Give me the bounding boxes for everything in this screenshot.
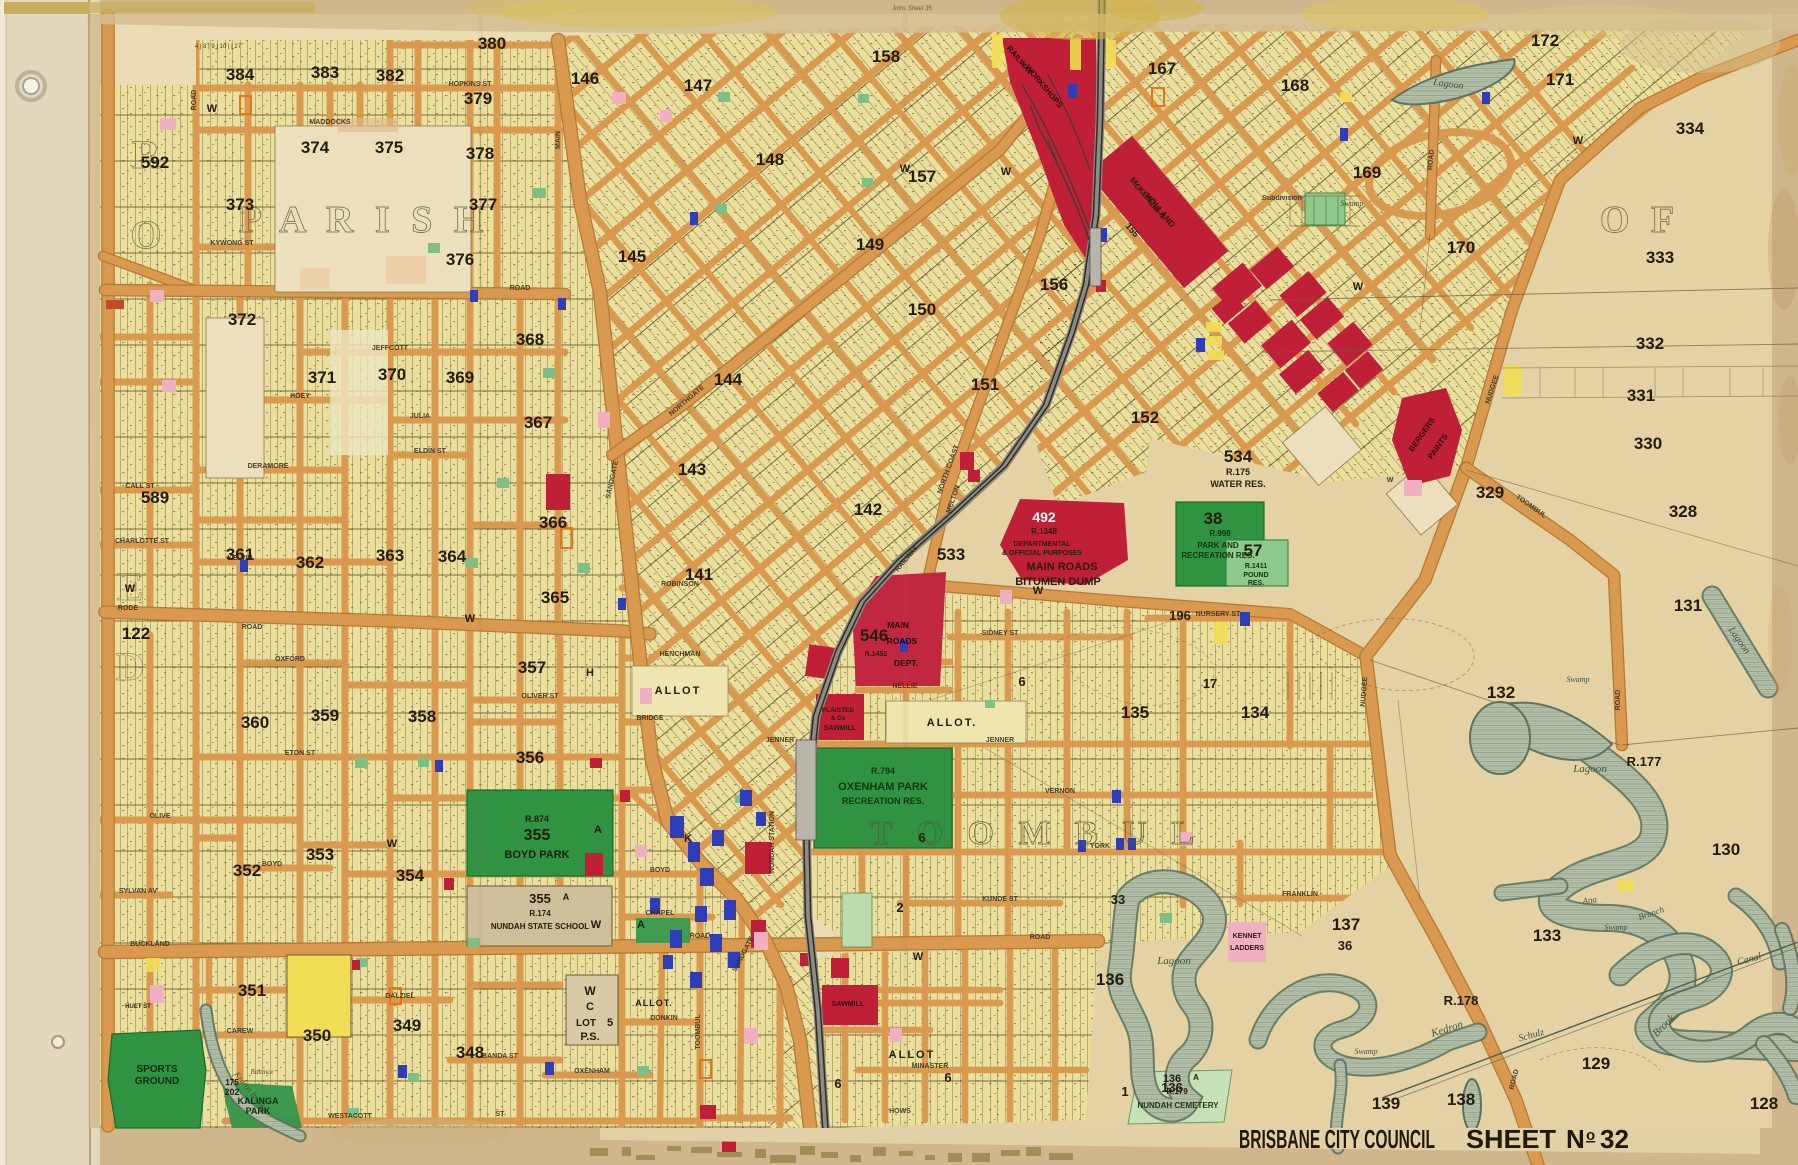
svg-text:Joins Sheet 35: Joins Sheet 35 bbox=[891, 6, 932, 12]
svg-text:ALLOT.: ALLOT. bbox=[927, 717, 978, 729]
svg-text:Swamp: Swamp bbox=[1566, 675, 1589, 684]
svg-text:131: 131 bbox=[1674, 596, 1702, 615]
svg-text:355: 355 bbox=[529, 891, 551, 906]
svg-text:171: 171 bbox=[1546, 70, 1574, 89]
svg-text:129: 129 bbox=[1582, 1054, 1610, 1073]
svg-text:145: 145 bbox=[618, 247, 646, 266]
svg-text:384: 384 bbox=[226, 65, 255, 84]
svg-text:H: H bbox=[586, 667, 594, 679]
svg-text:328: 328 bbox=[1669, 502, 1697, 521]
svg-text:MINASTER: MINASTER bbox=[912, 1063, 949, 1070]
svg-text:ALLOT.: ALLOT. bbox=[635, 998, 673, 1008]
svg-text:351: 351 bbox=[238, 981, 266, 1000]
svg-text:Swamp: Swamp bbox=[1604, 923, 1627, 932]
svg-text:152: 152 bbox=[1131, 408, 1159, 427]
svg-text:6: 6 bbox=[944, 1070, 951, 1085]
svg-text:137: 137 bbox=[1332, 915, 1360, 934]
svg-text:R.177: R.177 bbox=[1627, 754, 1662, 769]
svg-text:128: 128 bbox=[1750, 1094, 1778, 1113]
svg-text:W: W bbox=[591, 919, 602, 931]
svg-text:150: 150 bbox=[908, 300, 936, 319]
svg-text:MADDOCKS: MADDOCKS bbox=[309, 119, 351, 126]
svg-text:382: 382 bbox=[376, 66, 404, 85]
svg-text:378: 378 bbox=[466, 144, 494, 163]
svg-text:HOWS: HOWS bbox=[889, 1108, 911, 1115]
svg-text:ELDIN ST: ELDIN ST bbox=[414, 448, 447, 455]
svg-text:R.1452: R.1452 bbox=[865, 651, 888, 658]
svg-text:33: 33 bbox=[1111, 892, 1125, 907]
svg-text:RODE: RODE bbox=[118, 605, 139, 612]
svg-text:374: 374 bbox=[301, 138, 330, 157]
svg-text:168: 168 bbox=[1281, 76, 1309, 95]
svg-text:38: 38 bbox=[1204, 509, 1223, 528]
svg-text:HENCHMAN: HENCHMAN bbox=[660, 651, 701, 658]
svg-text:NUNDAH CEMETERY: NUNDAH CEMETERY bbox=[1137, 1101, 1219, 1110]
svg-text:17: 17 bbox=[1203, 676, 1217, 691]
svg-text:W: W bbox=[465, 613, 476, 625]
svg-text:ROAD: ROAD bbox=[191, 90, 198, 111]
svg-text:136: 136 bbox=[1163, 1073, 1181, 1085]
svg-text:R.794: R.794 bbox=[871, 766, 895, 776]
svg-text:Swamp: Swamp bbox=[1340, 199, 1363, 208]
svg-text:SAWMILL: SAWMILL bbox=[824, 725, 857, 732]
svg-text:546: 546 bbox=[860, 626, 888, 645]
svg-text:6: 6 bbox=[1018, 674, 1025, 689]
svg-text:5: 5 bbox=[607, 1017, 613, 1029]
svg-text:W: W bbox=[387, 838, 398, 850]
svg-text:136: 136 bbox=[1096, 970, 1124, 989]
svg-text:HUET ST: HUET ST bbox=[125, 1004, 151, 1010]
svg-text:W: W bbox=[584, 984, 596, 998]
svg-text:RES.: RES. bbox=[1248, 580, 1264, 587]
svg-text:363: 363 bbox=[376, 546, 404, 565]
svg-text:592: 592 bbox=[141, 153, 169, 172]
svg-text:135: 135 bbox=[1121, 703, 1149, 722]
svg-text:329: 329 bbox=[1476, 483, 1504, 502]
svg-text:1: 1 bbox=[1121, 1084, 1128, 1099]
svg-text:359: 359 bbox=[311, 706, 339, 725]
svg-text:R.1348: R.1348 bbox=[1031, 527, 1057, 536]
svg-text:OXENHAM: OXENHAM bbox=[574, 1068, 610, 1075]
svg-text:534: 534 bbox=[1224, 447, 1253, 466]
svg-text:ROAD: ROAD bbox=[690, 933, 711, 940]
svg-text:KUNDE ST: KUNDE ST bbox=[982, 896, 1019, 903]
svg-text:SIDNEY ST: SIDNEY ST bbox=[982, 630, 1020, 637]
svg-text:196: 196 bbox=[1169, 608, 1191, 623]
svg-text:372: 372 bbox=[228, 310, 256, 329]
svg-text:JENNER: JENNER bbox=[766, 737, 794, 744]
svg-text:BRISBANE CITY COUNCIL: BRISBANE CITY COUNCIL bbox=[1239, 1124, 1435, 1154]
svg-text:349: 349 bbox=[393, 1016, 421, 1035]
svg-text:KENNET: KENNET bbox=[1233, 933, 1263, 940]
svg-text:32: 32 bbox=[1600, 1124, 1629, 1154]
svg-text:202: 202 bbox=[224, 1087, 239, 1097]
svg-text:& Co: & Co bbox=[831, 716, 845, 722]
svg-text:367: 367 bbox=[524, 413, 552, 432]
svg-text:GROUND: GROUND bbox=[135, 1076, 179, 1087]
svg-text:DONKIN: DONKIN bbox=[650, 1015, 678, 1022]
svg-text:W: W bbox=[1387, 477, 1394, 484]
svg-text:360: 360 bbox=[241, 713, 269, 732]
svg-text:CHARLOTTE ST: CHARLOTTE ST bbox=[115, 538, 170, 545]
svg-text:143: 143 bbox=[678, 460, 706, 479]
svg-text:365: 365 bbox=[541, 588, 569, 607]
svg-text:352: 352 bbox=[233, 861, 261, 880]
svg-text:139: 139 bbox=[1372, 1094, 1400, 1113]
svg-text:4 | 8 | 9 | 10 | | 27: 4 | 8 | 9 | 10 | | 27 bbox=[195, 44, 242, 50]
svg-text:138: 138 bbox=[1447, 1090, 1475, 1109]
svg-text:P.S.: P.S. bbox=[580, 1031, 599, 1043]
svg-text:K: K bbox=[684, 833, 692, 845]
svg-text:362: 362 bbox=[296, 553, 324, 572]
svg-text:OLIVE: OLIVE bbox=[149, 813, 170, 820]
svg-text:FRANKLIN: FRANKLIN bbox=[1282, 891, 1318, 898]
svg-text:Lagoon: Lagoon bbox=[1572, 763, 1607, 775]
svg-text:ALLOT: ALLOT bbox=[655, 685, 702, 697]
svg-text:WESTACOTT: WESTACOTT bbox=[328, 1113, 373, 1120]
svg-text:DALZIEL: DALZIEL bbox=[385, 993, 415, 1000]
svg-text:R.178: R.178 bbox=[1444, 993, 1479, 1008]
svg-text:ROADS: ROADS bbox=[887, 636, 918, 646]
svg-text:W: W bbox=[1573, 135, 1584, 147]
svg-text:VERNON: VERNON bbox=[1045, 788, 1075, 795]
svg-text:W: W bbox=[1033, 585, 1044, 597]
svg-text:169: 169 bbox=[1353, 163, 1381, 182]
svg-text:LOT: LOT bbox=[576, 1018, 596, 1029]
svg-text:142: 142 bbox=[854, 500, 882, 519]
svg-text:Subdivision: Subdivision bbox=[1262, 195, 1302, 202]
svg-text:370: 370 bbox=[378, 365, 406, 384]
svg-text:BOYD: BOYD bbox=[262, 861, 282, 868]
svg-text:OXFORD: OXFORD bbox=[275, 656, 305, 663]
svg-text:379: 379 bbox=[464, 89, 492, 108]
svg-text:R.998: R.998 bbox=[1209, 529, 1231, 538]
svg-text:BITUMEN DUMP: BITUMEN DUMP bbox=[1015, 576, 1101, 588]
svg-text:O: O bbox=[130, 212, 161, 257]
svg-text:OLIVER ST: OLIVER ST bbox=[522, 693, 560, 700]
svg-text:364: 364 bbox=[438, 547, 467, 566]
svg-text:CAREW: CAREW bbox=[227, 1028, 254, 1035]
svg-text:330: 330 bbox=[1634, 434, 1662, 453]
svg-text:368: 368 bbox=[516, 330, 544, 349]
svg-text:A: A bbox=[563, 892, 570, 902]
svg-text:133: 133 bbox=[1533, 926, 1561, 945]
svg-text:589: 589 bbox=[141, 488, 169, 507]
svg-text:355: 355 bbox=[524, 827, 551, 844]
svg-text:P A R I S H: P A R I S H bbox=[239, 199, 490, 241]
svg-text:W: W bbox=[125, 583, 136, 595]
svg-text:NELLIE: NELLIE bbox=[893, 683, 918, 690]
svg-text:DERAMORE: DERAMORE bbox=[248, 463, 289, 470]
svg-text:376: 376 bbox=[446, 250, 474, 269]
svg-text:158: 158 bbox=[872, 47, 900, 66]
svg-text:SPORTS: SPORTS bbox=[136, 1064, 177, 1075]
svg-text:JULIA: JULIA bbox=[410, 413, 430, 420]
svg-text:148: 148 bbox=[756, 150, 784, 169]
svg-text:R.1411: R.1411 bbox=[1245, 563, 1267, 570]
svg-text:KELVIN: KELVIN bbox=[227, 555, 252, 562]
svg-text:MAIN: MAIN bbox=[555, 131, 562, 149]
svg-text:134: 134 bbox=[1241, 703, 1270, 722]
svg-text:350: 350 bbox=[303, 1026, 331, 1045]
svg-text:C: C bbox=[586, 1001, 594, 1013]
svg-text:ROBINSON: ROBINSON bbox=[661, 581, 699, 588]
svg-text:348: 348 bbox=[456, 1043, 484, 1062]
svg-text:156: 156 bbox=[1040, 275, 1068, 294]
svg-text:371: 371 bbox=[308, 368, 336, 387]
svg-text:Swamp: Swamp bbox=[1354, 1047, 1377, 1056]
svg-text:W: W bbox=[913, 951, 924, 963]
svg-text:122: 122 bbox=[122, 624, 150, 643]
svg-text:RECREATION RES.: RECREATION RES. bbox=[842, 796, 924, 806]
svg-text:377: 377 bbox=[469, 195, 497, 214]
svg-text:358: 358 bbox=[408, 707, 436, 726]
svg-text:ST: ST bbox=[496, 1111, 506, 1118]
svg-text:BOYD PARK: BOYD PARK bbox=[504, 849, 569, 861]
svg-text:O F: O F bbox=[1600, 199, 1680, 241]
svg-text:172: 172 bbox=[1531, 31, 1559, 50]
svg-text:ROAD: ROAD bbox=[510, 285, 531, 292]
svg-text:R.179: R.179 bbox=[1166, 1087, 1188, 1096]
svg-text:CALL ST: CALL ST bbox=[125, 483, 155, 490]
svg-text:JEFFCOTT: JEFFCOTT bbox=[372, 345, 409, 352]
svg-text:& OFFICIAL PURPOSES: & OFFICIAL PURPOSES bbox=[1002, 550, 1082, 557]
svg-text:BANDA ST: BANDA ST bbox=[482, 1053, 519, 1060]
svg-text:149: 149 bbox=[856, 235, 884, 254]
svg-text:Lagoon: Lagoon bbox=[1156, 955, 1191, 967]
svg-text:W: W bbox=[207, 103, 218, 115]
svg-text:354: 354 bbox=[396, 866, 425, 885]
svg-text:YORK: YORK bbox=[1090, 843, 1110, 850]
svg-text:130: 130 bbox=[1712, 840, 1740, 859]
svg-text:RECREATION RES.: RECREATION RES. bbox=[1181, 551, 1254, 560]
svg-text:375: 375 bbox=[375, 138, 403, 157]
svg-text:357: 357 bbox=[518, 658, 546, 677]
svg-text:SHEET: SHEET bbox=[1466, 1124, 1556, 1154]
svg-text:TOOMBUL: TOOMBUL bbox=[695, 1014, 702, 1050]
svg-text:A: A bbox=[637, 919, 645, 931]
svg-text:PLAISTED: PLAISTED bbox=[822, 707, 854, 714]
svg-text:N: N bbox=[1566, 1124, 1585, 1154]
svg-text:D: D bbox=[116, 644, 145, 689]
svg-text:POUND: POUND bbox=[1243, 572, 1268, 579]
svg-text:WATER RES.: WATER RES. bbox=[1210, 479, 1265, 489]
svg-text:383: 383 bbox=[311, 63, 339, 82]
svg-text:o: o bbox=[1586, 1127, 1595, 1144]
svg-text:HOPKINS ST: HOPKINS ST bbox=[449, 81, 493, 88]
svg-text:6: 6 bbox=[918, 830, 925, 845]
svg-text:533: 533 bbox=[937, 545, 965, 564]
svg-text:BRIDGE: BRIDGE bbox=[636, 715, 664, 722]
svg-text:W: W bbox=[1001, 166, 1012, 178]
svg-text:SAWMILL: SAWMILL bbox=[832, 1001, 865, 1008]
svg-text:147: 147 bbox=[684, 76, 712, 95]
svg-text:36: 36 bbox=[1338, 938, 1352, 953]
svg-text:DEPT.: DEPT. bbox=[894, 658, 918, 668]
svg-text:KYWONG ST: KYWONG ST bbox=[210, 240, 254, 247]
svg-text:BOYD: BOYD bbox=[650, 867, 670, 874]
svg-text:ETON ST: ETON ST bbox=[285, 750, 316, 757]
svg-text:132: 132 bbox=[1487, 683, 1515, 702]
svg-text:DEPARTMENTAL: DEPARTMENTAL bbox=[1014, 541, 1072, 548]
svg-text:ROAD: ROAD bbox=[1615, 690, 1622, 711]
svg-text:NURSERY ST: NURSERY ST bbox=[1196, 611, 1241, 618]
svg-text:W: W bbox=[900, 163, 911, 175]
svg-text:333: 333 bbox=[1646, 248, 1674, 267]
svg-text:356: 356 bbox=[516, 748, 544, 767]
svg-text:A: A bbox=[1193, 1073, 1199, 1082]
svg-text:151: 151 bbox=[971, 375, 999, 394]
svg-text:369: 369 bbox=[446, 368, 474, 387]
svg-text:492: 492 bbox=[1032, 509, 1056, 525]
svg-text:NUNDAH STATION: NUNDAH STATION bbox=[769, 811, 776, 873]
svg-text:ROAD: ROAD bbox=[1030, 934, 1051, 941]
svg-text:146: 146 bbox=[571, 69, 599, 88]
svg-text:MAIN ROADS: MAIN ROADS bbox=[1027, 561, 1098, 573]
svg-text:A: A bbox=[594, 824, 602, 836]
svg-text:157: 157 bbox=[908, 167, 936, 186]
svg-text:334: 334 bbox=[1676, 119, 1705, 138]
svg-text:SYLVAN AV: SYLVAN AV bbox=[119, 888, 158, 895]
svg-text:W: W bbox=[1353, 281, 1364, 293]
svg-text:332: 332 bbox=[1636, 334, 1664, 353]
svg-text:R.175: R.175 bbox=[1226, 467, 1250, 477]
svg-text:353: 353 bbox=[306, 845, 334, 864]
svg-text:R.874: R.874 bbox=[525, 814, 549, 824]
svg-text:366: 366 bbox=[539, 513, 567, 532]
svg-text:LADDERS: LADDERS bbox=[1230, 945, 1264, 952]
svg-text:MAIN: MAIN bbox=[887, 620, 909, 630]
svg-text:373: 373 bbox=[226, 195, 254, 214]
svg-text:170: 170 bbox=[1447, 238, 1475, 257]
svg-text:2: 2 bbox=[896, 900, 903, 915]
svg-text:Balance: Balance bbox=[251, 1068, 274, 1076]
svg-text:PARK AND: PARK AND bbox=[1197, 541, 1239, 550]
svg-text:167: 167 bbox=[1148, 59, 1176, 78]
svg-text:JENNER: JENNER bbox=[986, 737, 1014, 744]
svg-text:144: 144 bbox=[714, 370, 743, 389]
svg-text:331: 331 bbox=[1627, 386, 1655, 405]
svg-text:OXENHAM PARK: OXENHAM PARK bbox=[838, 781, 928, 793]
svg-text:380: 380 bbox=[478, 34, 506, 53]
svg-text:ALLOT: ALLOT bbox=[889, 1049, 936, 1061]
svg-text:6: 6 bbox=[834, 1076, 841, 1091]
svg-text:HOEY: HOEY bbox=[290, 393, 310, 400]
svg-text:ROAD: ROAD bbox=[242, 624, 263, 631]
svg-text:NUNDAH STATE SCHOOL: NUNDAH STATE SCHOOL bbox=[491, 922, 589, 931]
svg-text:CHAPEL: CHAPEL bbox=[646, 910, 676, 917]
svg-text:R.174: R.174 bbox=[529, 909, 551, 918]
svg-text:BUCKLAND: BUCKLAND bbox=[130, 941, 170, 948]
